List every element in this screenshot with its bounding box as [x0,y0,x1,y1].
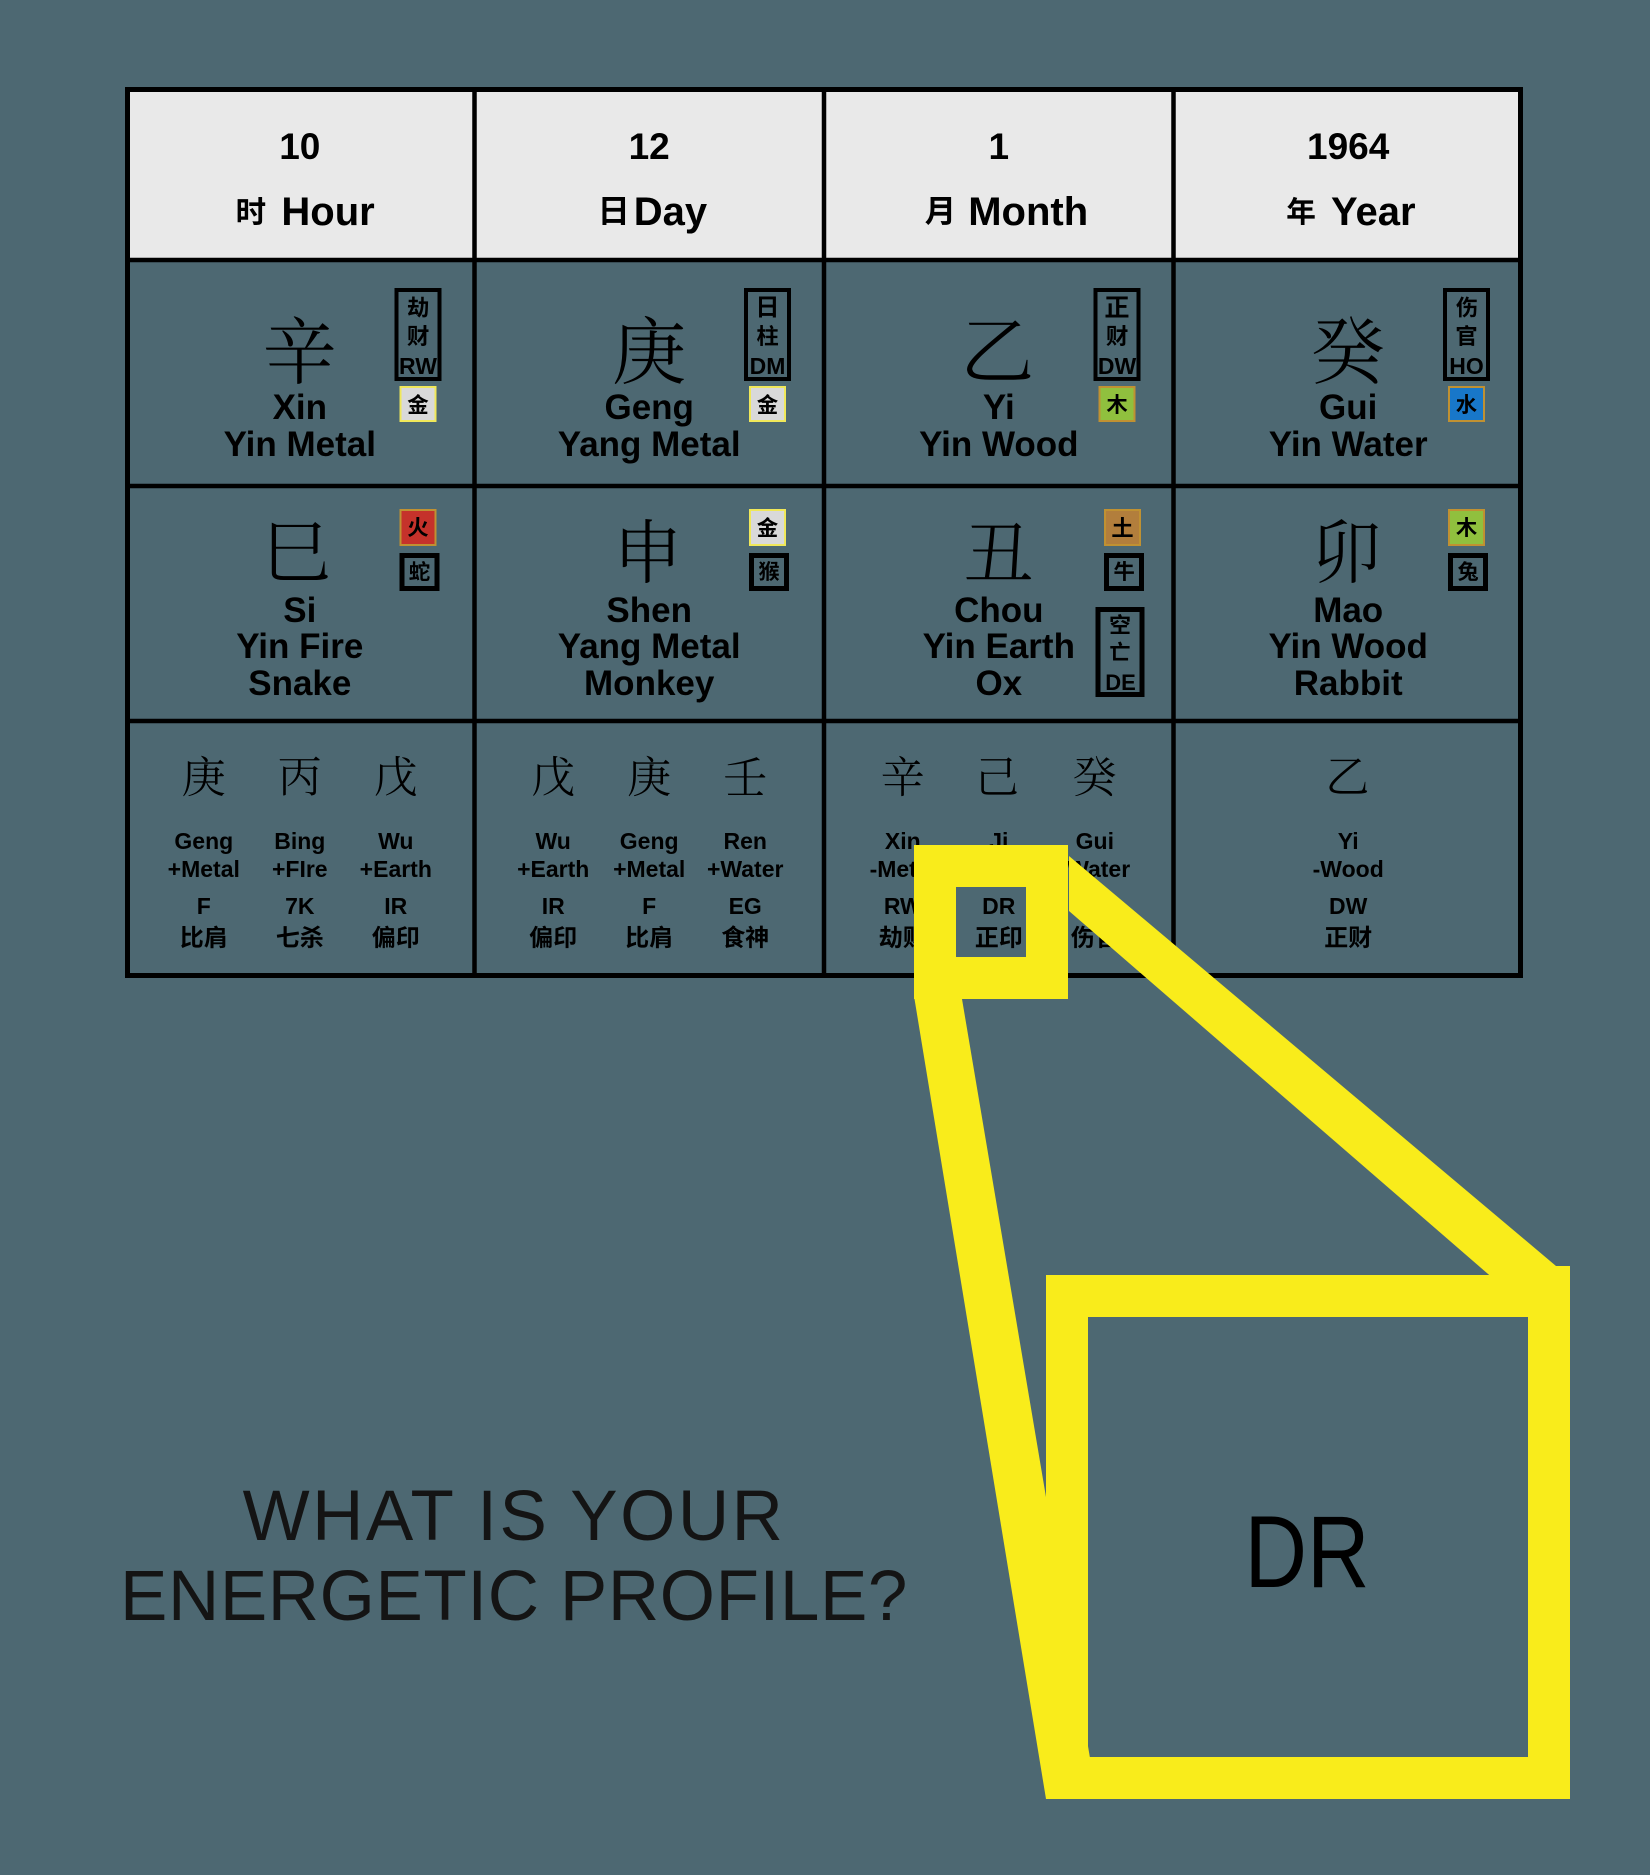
svg-text:Yin Fire: Yin Fire [236,627,363,666]
svg-text:Si: Si [283,591,316,630]
svg-text:WHAT IS YOUR: WHAT IS YOUR [243,1477,786,1556]
svg-text:Month: Month [968,190,1088,234]
svg-text:Geng: Geng [174,828,233,854]
svg-text:HO: HO [1449,353,1484,379]
svg-text:IR: IR [542,893,565,919]
svg-text:+Earth: +Earth [517,856,589,882]
svg-text:Wu: Wu [378,828,413,854]
svg-text:Yi: Yi [983,388,1015,427]
svg-text:12: 12 [629,126,670,167]
svg-text:Ren: Ren [723,828,766,854]
svg-text:Day: Day [634,190,708,234]
svg-text:Yin Water: Yin Water [1269,425,1428,464]
svg-text:Yang Metal: Yang Metal [558,425,741,464]
svg-text:+Metal: +Metal [168,856,240,882]
svg-text:Geng: Geng [604,388,693,427]
svg-text:Geng: Geng [620,828,679,854]
svg-text:Monkey: Monkey [584,664,715,703]
svg-text:ENERGETIC PROFILE?: ENERGETIC PROFILE? [120,1557,908,1636]
svg-text:Yin Wood: Yin Wood [1268,627,1427,666]
svg-text:Gui: Gui [1076,828,1114,854]
svg-text:Yin Wood: Yin Wood [919,425,1078,464]
svg-text:Yin Metal: Yin Metal [224,425,376,464]
svg-text:Yang Metal: Yang Metal [558,627,741,666]
svg-text:Mao: Mao [1313,591,1383,630]
svg-text:Bing: Bing [274,828,325,854]
svg-text:RW: RW [399,353,437,379]
svg-text:Wu: Wu [536,828,571,854]
svg-text:DM: DM [750,353,786,379]
svg-text:1964: 1964 [1307,126,1390,167]
svg-text:+Metal: +Metal [613,856,685,882]
svg-text:+Earth: +Earth [360,856,432,882]
svg-text:DR: DR [982,893,1016,919]
svg-text:IR: IR [384,893,407,919]
svg-text:10: 10 [279,126,320,167]
svg-text:Rabbit: Rabbit [1294,664,1403,703]
svg-text:+FIre: +FIre [272,856,328,882]
svg-text:DR: DR [1245,1495,1370,1609]
svg-text:F: F [197,893,211,919]
svg-text:EG: EG [729,893,762,919]
svg-text:Xin: Xin [273,388,327,427]
svg-text:DW: DW [1098,353,1137,379]
svg-text:Yi: Yi [1338,828,1359,854]
svg-text:DE: DE [1105,670,1136,695]
svg-text:Year: Year [1331,190,1416,234]
svg-text:DW: DW [1329,893,1368,919]
svg-text:Snake: Snake [248,664,351,703]
svg-text:1: 1 [989,126,1010,167]
svg-text:Hour: Hour [281,190,374,234]
svg-text:-Wood: -Wood [1313,856,1384,882]
svg-text:Ox: Ox [975,664,1022,703]
svg-text:Yin Earth: Yin Earth [923,627,1075,666]
svg-text:F: F [642,893,656,919]
svg-text:+Water: +Water [707,856,784,882]
svg-text:Shen: Shen [606,591,692,630]
svg-text:Gui: Gui [1319,388,1377,427]
svg-text:Chou: Chou [954,591,1043,630]
svg-text:7K: 7K [285,893,315,919]
